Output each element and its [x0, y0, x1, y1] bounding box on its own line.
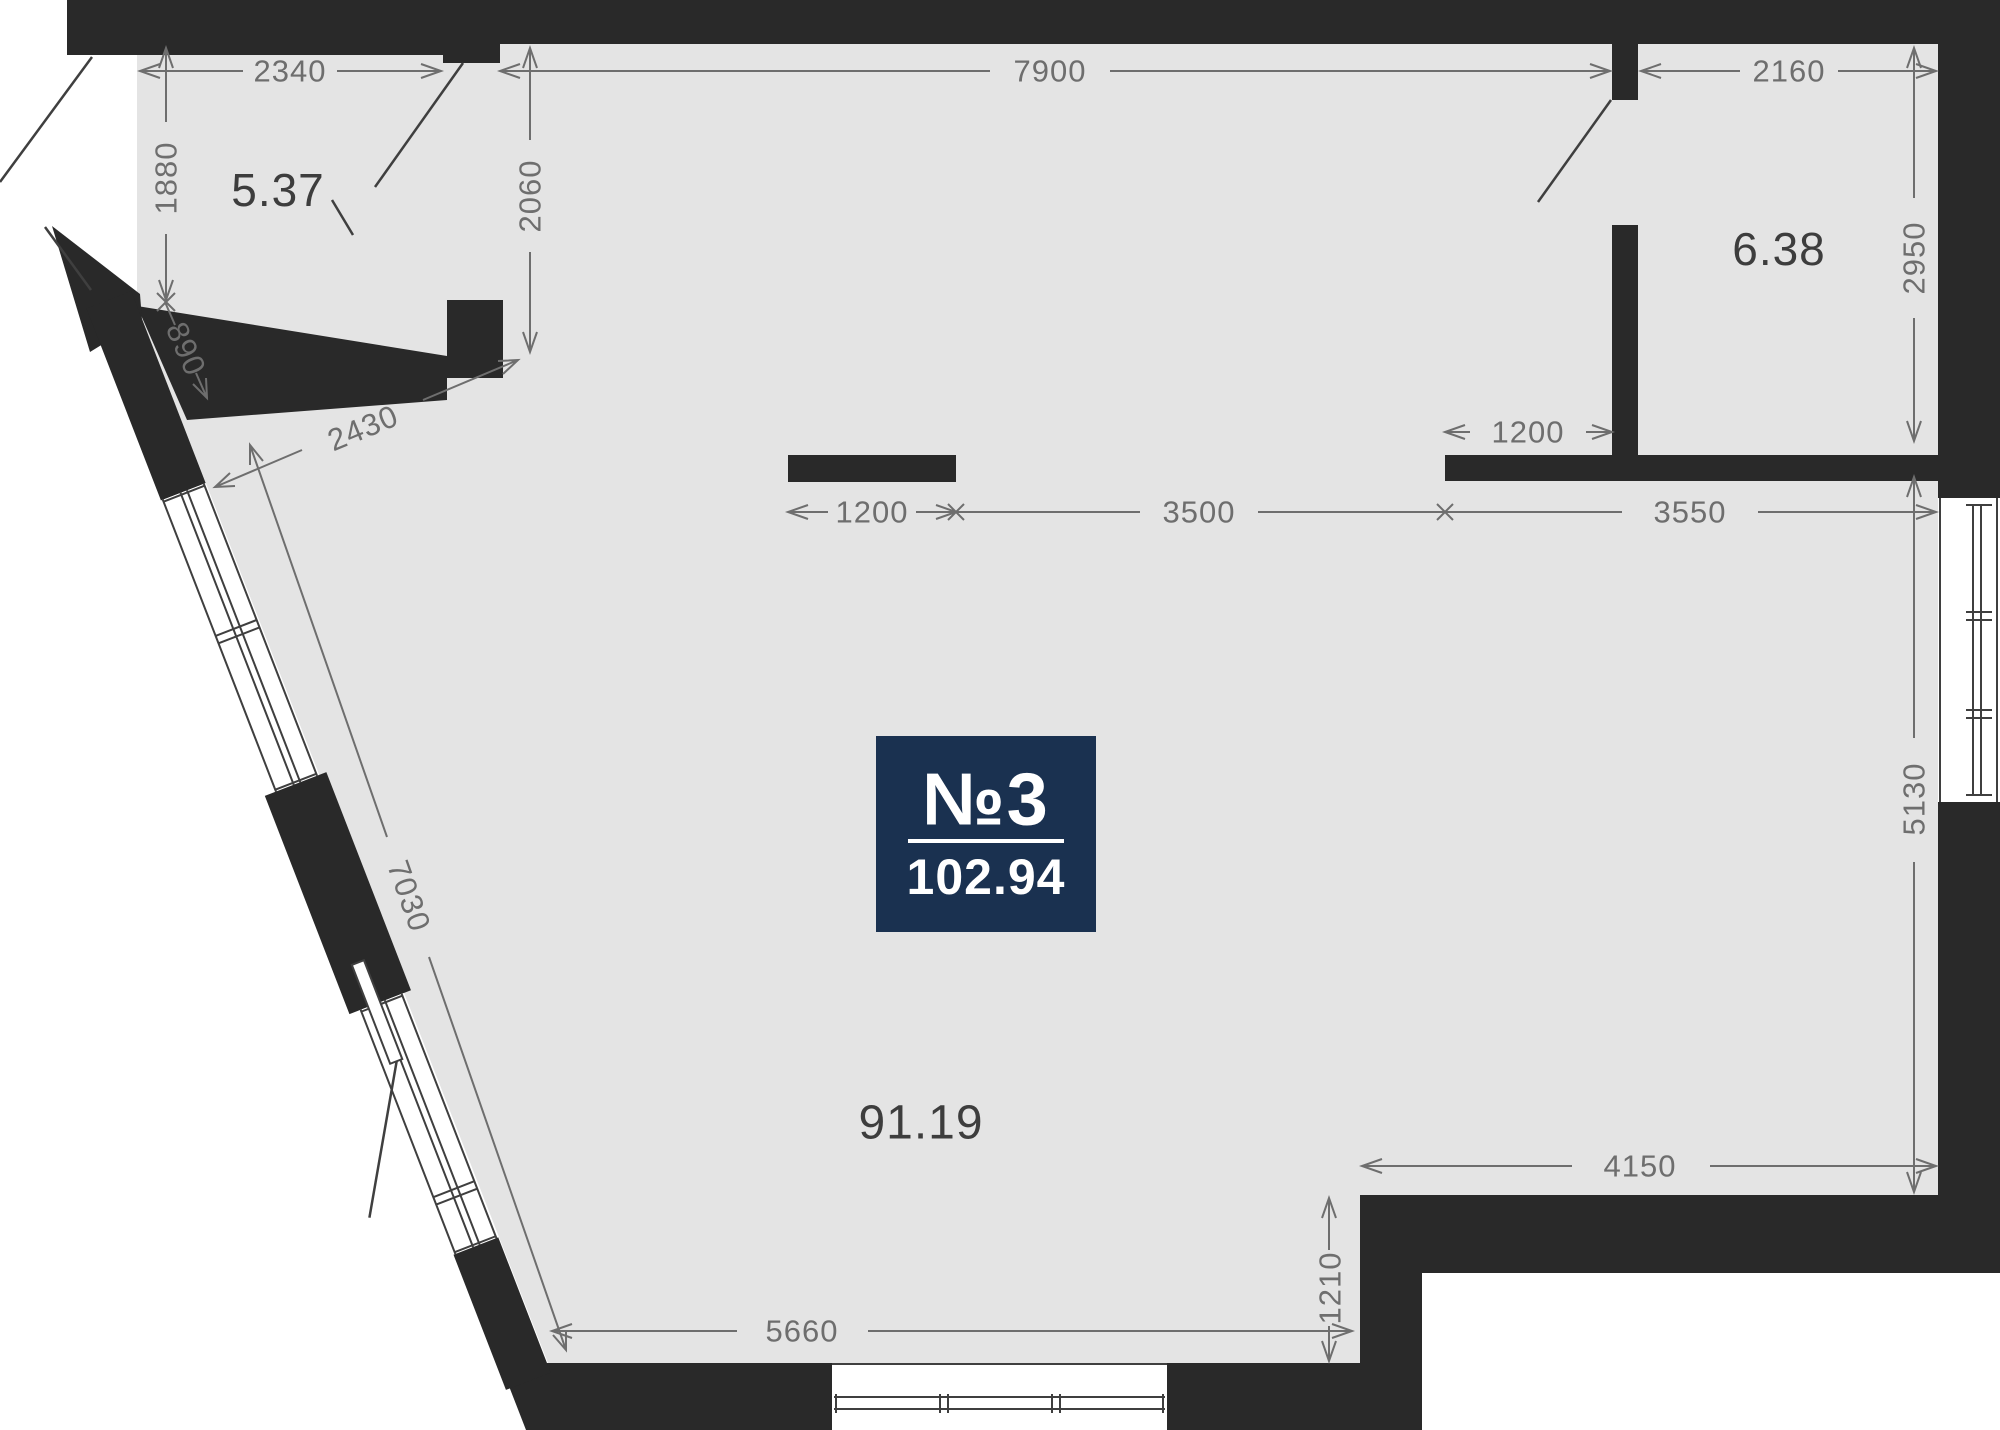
area-label-room-main: 91.19 — [858, 1097, 983, 1150]
wall-bottom-right-band — [1360, 1195, 2000, 1273]
wall-mid-stub — [788, 455, 956, 482]
area-label-room-638: 6.38 — [1732, 223, 1826, 275]
dim-label-4150: 4150 — [1604, 1149, 1677, 1184]
dim-label-7900: 7900 — [1014, 54, 1087, 89]
dim-label-1880: 1880 — [149, 142, 184, 215]
wall-stub-entry-537 — [443, 44, 500, 63]
dim-label-1200-mid: 1200 — [836, 495, 909, 530]
door-swing-entrance — [0, 57, 92, 182]
dim-label-5660: 5660 — [766, 1314, 839, 1349]
wall-537-corner — [447, 300, 503, 378]
floor-plan-page: 2340 7900 2160 1880 2060 890 2430 7030 1… — [0, 0, 2000, 1430]
window-right — [1940, 498, 2000, 802]
dim-label-2950: 2950 — [1897, 222, 1932, 295]
unit-badge-number: №3 — [922, 758, 1050, 841]
dim-label-2160: 2160 — [1753, 54, 1826, 89]
wall-top — [67, 0, 2000, 44]
wall-stub-638 — [1612, 44, 1638, 100]
wall-638-left — [1612, 225, 1638, 455]
dim-label-3500: 3500 — [1163, 495, 1236, 530]
area-label-room-537: 5.37 — [231, 164, 325, 216]
dim-label-1200-kitchen: 1200 — [1492, 415, 1565, 450]
unit-badge[interactable]: №3 102.94 — [876, 736, 1096, 932]
unit-badge-area: 102.94 — [907, 849, 1066, 905]
dim-label-5130: 5130 — [1897, 763, 1932, 836]
dim-label-2340: 2340 — [254, 54, 327, 89]
wall-mid-right-horizontal — [1445, 455, 2000, 481]
window-bottom — [832, 1363, 1167, 1430]
dim-label-3550: 3550 — [1654, 495, 1727, 530]
wall-bottom-left — [500, 1363, 832, 1430]
wall-bottom-mid — [1167, 1363, 1422, 1430]
wall-right-upper — [1938, 44, 2000, 498]
dim-label-2060: 2060 — [513, 160, 548, 233]
dim-label-1210: 1210 — [1313, 1252, 1348, 1325]
floor-plan-svg: 2340 7900 2160 1880 2060 890 2430 7030 1… — [0, 0, 2000, 1430]
